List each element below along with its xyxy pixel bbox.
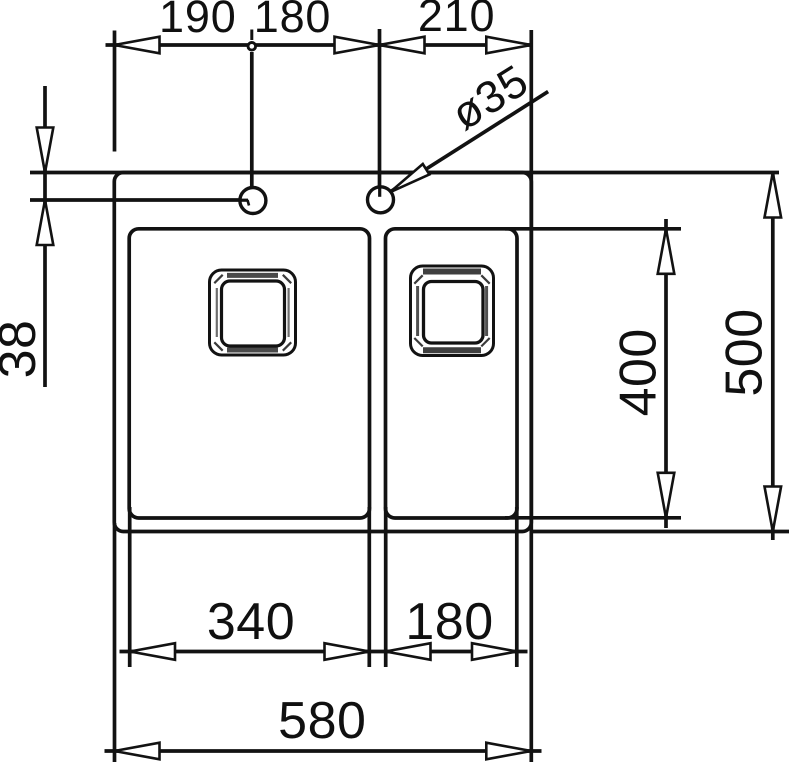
svg-text:340: 340 xyxy=(207,593,295,651)
svg-text:ø35: ø35 xyxy=(442,54,537,140)
svg-text:190: 190 xyxy=(159,0,236,42)
svg-text:580: 580 xyxy=(278,692,366,750)
svg-text:38: 38 xyxy=(0,320,47,379)
svg-text:500: 500 xyxy=(716,308,774,396)
svg-text:180: 180 xyxy=(254,0,331,42)
svg-text:400: 400 xyxy=(609,328,667,416)
svg-text:180: 180 xyxy=(405,593,493,651)
svg-text:210: 210 xyxy=(418,0,495,41)
